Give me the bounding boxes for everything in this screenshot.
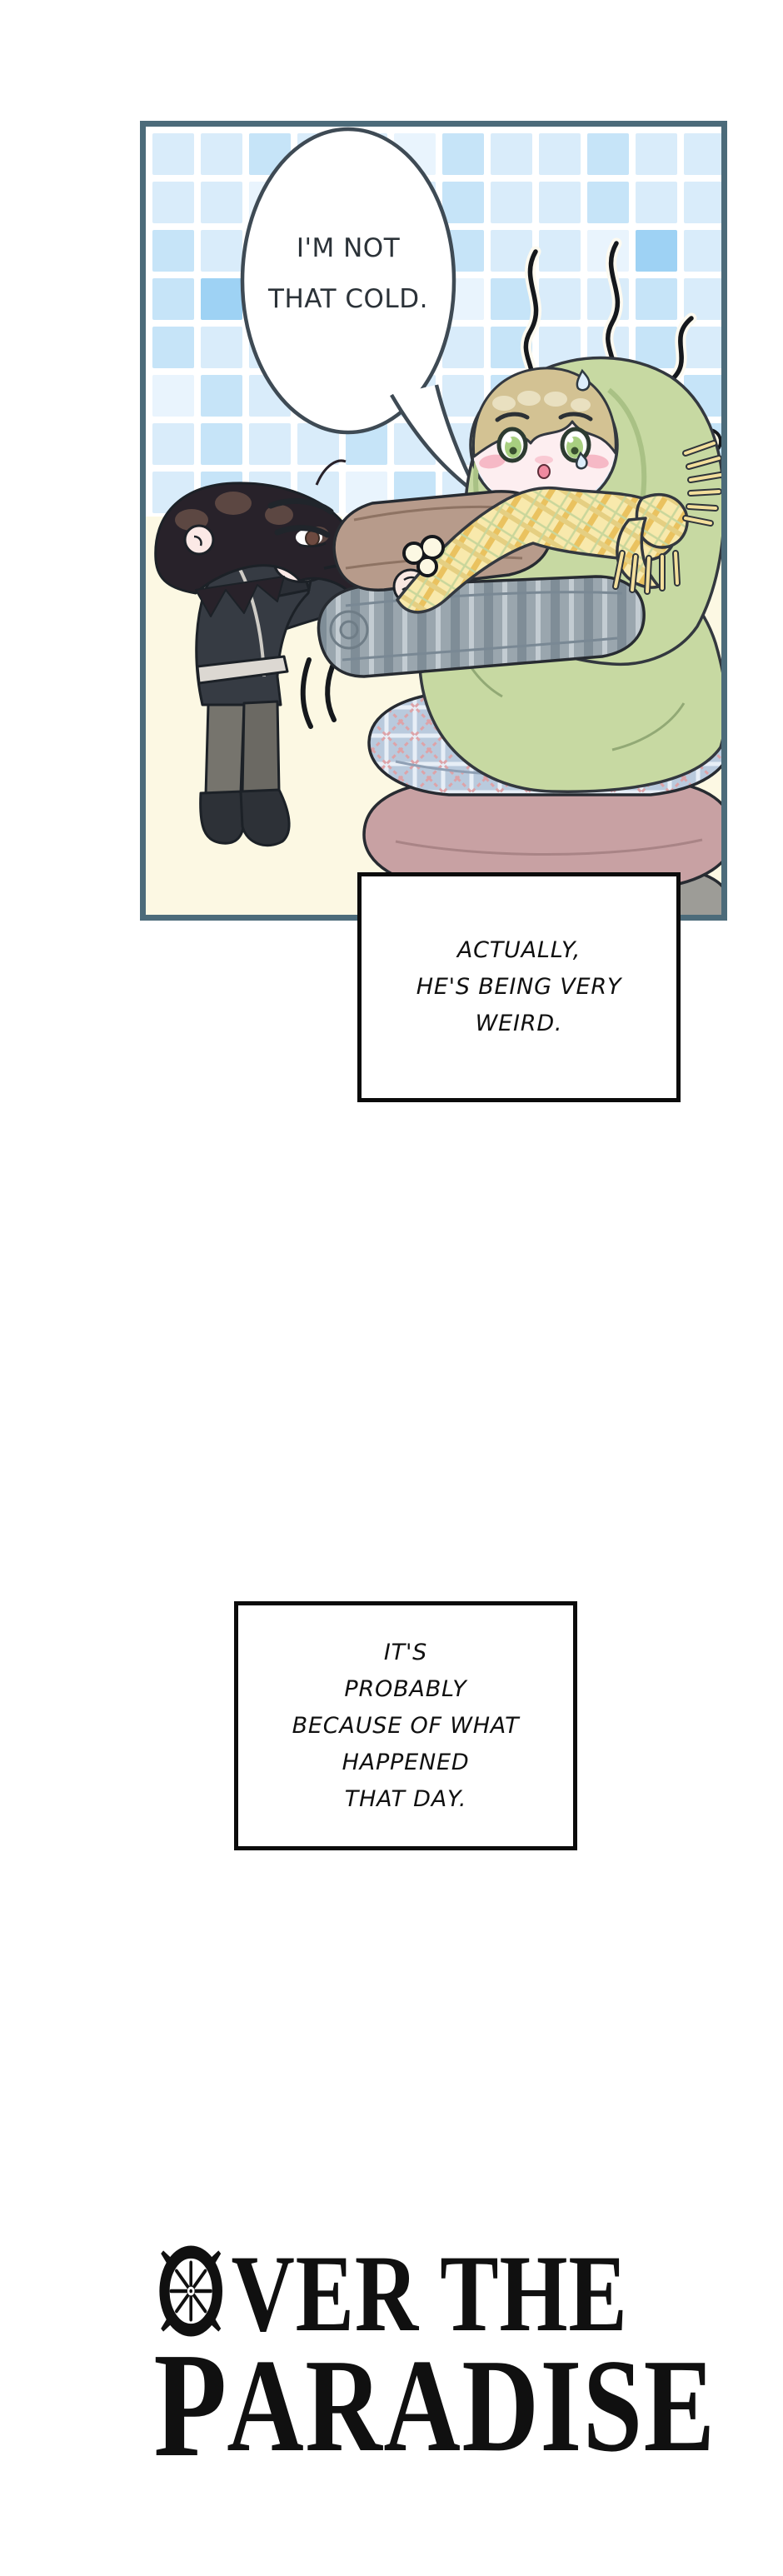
speech-bubble-text: I'M NOT THAT COLD.: [252, 223, 444, 325]
soldier-boot: [241, 790, 289, 846]
caption-box: ACTUALLY, HE'S BEING VERY WEIRD.: [357, 872, 681, 1102]
boy-mouth: [538, 465, 550, 478]
caption-text: IT'S PROBABLY BECAUSE OF WHAT HAPPENED T…: [292, 1635, 520, 1818]
soldier-leg: [242, 701, 279, 793]
logo-text: VER THE: [232, 2244, 628, 2344]
webtoon-page: { "panel": { "speech_bubble": { "text": …: [0, 0, 783, 2576]
logo-text: ARADISE: [227, 2347, 716, 2464]
caption-text: ACTUALLY, HE'S BEING VERY WEIRD.: [416, 932, 622, 1042]
soldier-boot: [201, 791, 245, 843]
caption-box: IT'S PROBABLY BECAUSE OF WHAT HAPPENED T…: [234, 1601, 577, 1850]
logo-text-initial: P: [153, 2347, 227, 2464]
soldier-leg: [206, 705, 244, 795]
series-logo: VER THE PARADISE: [0, 2243, 783, 2464]
logo-line-2: PARADISE: [122, 2346, 748, 2464]
